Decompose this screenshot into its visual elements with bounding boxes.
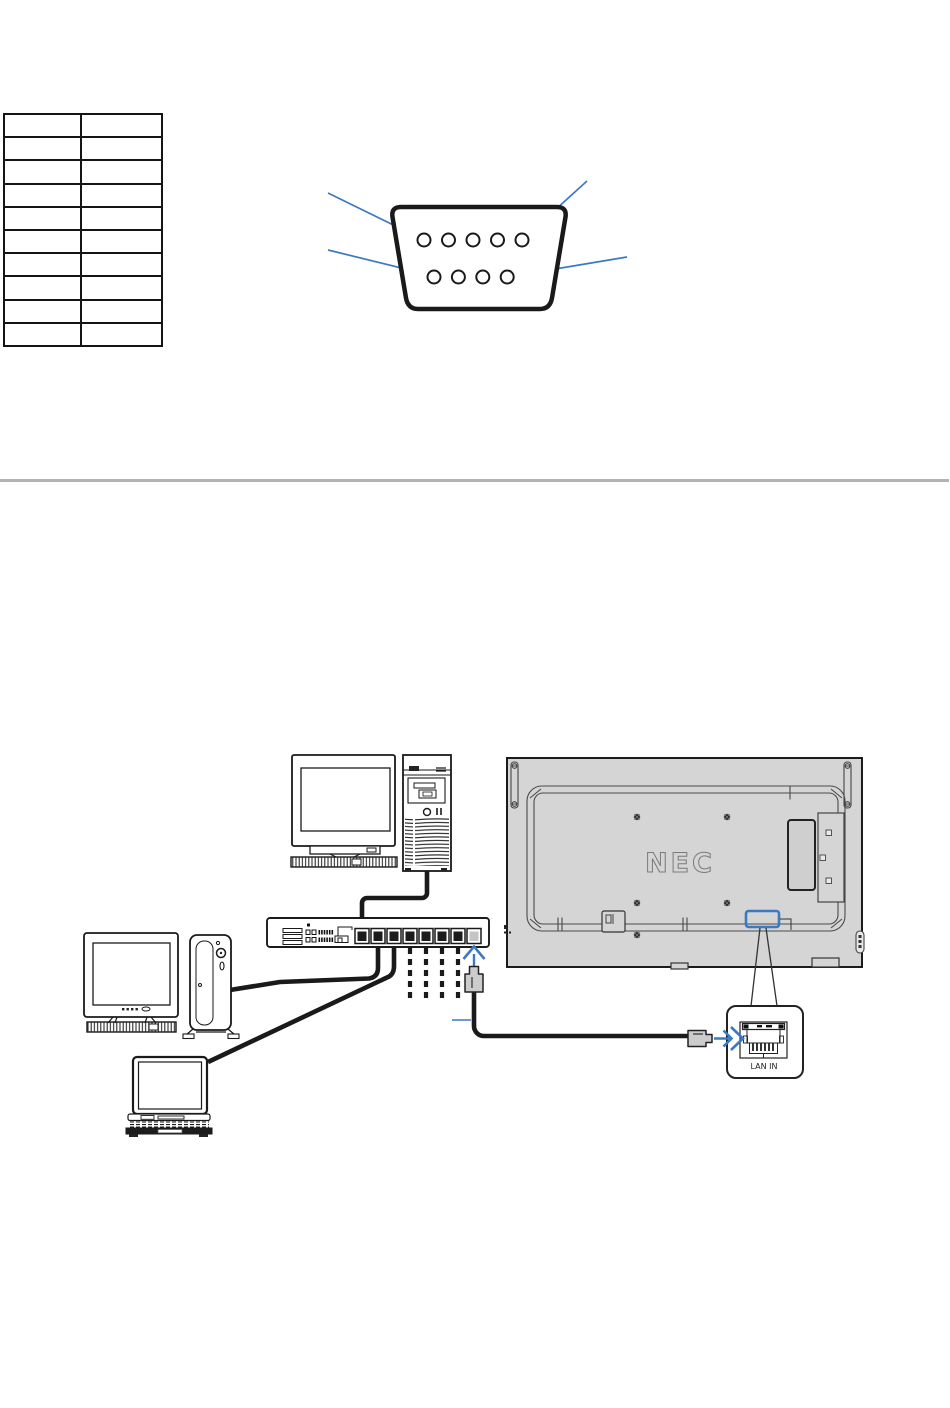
led	[306, 930, 310, 935]
crt-screen	[93, 943, 170, 1005]
laptop-hinge-left	[141, 1116, 154, 1120]
monitor-power	[142, 1007, 150, 1011]
tower-badge	[409, 766, 419, 771]
led-dot	[321, 938, 323, 943]
hub-port-inner	[390, 932, 399, 942]
dsub-pin-top	[516, 234, 529, 247]
bottom-notch	[671, 963, 688, 969]
led	[312, 938, 316, 943]
network-hub	[267, 918, 489, 947]
dsub-pin-top	[491, 234, 504, 247]
dsub-pin-top	[418, 234, 431, 247]
led-dot	[324, 938, 326, 943]
hub-port-inner	[406, 932, 415, 942]
dsub-pin-bottom	[452, 271, 465, 284]
keyboard-key	[352, 859, 361, 865]
cable-clamp	[602, 911, 625, 932]
desktop-computer-1	[291, 755, 451, 871]
cable-hub-to-laptop	[208, 943, 394, 1062]
manual-page: NEC	[0, 0, 950, 1408]
rj45-plug-vertical	[465, 967, 483, 993]
keyboard-key	[149, 1024, 158, 1030]
hub-port-inner	[470, 932, 479, 942]
dsub-pin-top	[442, 234, 455, 247]
tower-foot-right	[228, 1034, 239, 1039]
laptop-hinge-right	[158, 1116, 184, 1119]
laptop-touchpad	[158, 1130, 182, 1133]
option-slot-cover	[788, 820, 815, 890]
led-dot	[319, 930, 321, 935]
led-dot	[326, 930, 328, 935]
dsub-9pin-connector-diagram	[328, 181, 627, 309]
keyboard	[87, 1022, 176, 1032]
hub-port-inner	[358, 932, 367, 942]
dsub-pin-bottom	[501, 271, 514, 284]
tower-screw	[199, 984, 202, 987]
led-dot	[332, 930, 334, 935]
hub-led-dot	[307, 924, 310, 927]
tower-vents	[405, 818, 449, 866]
tower-front-panel	[196, 941, 213, 1025]
led-dot	[329, 938, 331, 943]
hub-dashed-drop-cables	[410, 948, 458, 1000]
led-dot	[321, 930, 323, 935]
hub-port-inner	[374, 932, 383, 942]
stand-switch	[367, 848, 376, 852]
laptop-foot-left	[129, 1134, 138, 1137]
laptop-computer	[126, 1057, 212, 1137]
led-dot	[332, 938, 334, 943]
led	[312, 930, 316, 935]
rj45-plug-horizontal	[688, 1031, 712, 1047]
lan-in-label: LAN IN	[751, 1062, 778, 1071]
crt-screen	[301, 768, 390, 831]
led-dot	[329, 930, 331, 935]
hub-port-inner	[438, 932, 447, 942]
network-connection-diagram: NEC	[84, 755, 864, 1137]
nec-display-rear-panel: NEC	[504, 758, 864, 969]
dsub-pin-top	[467, 234, 480, 247]
led-dot	[319, 938, 321, 943]
tower-foot-right	[441, 868, 447, 871]
dsub-shell	[392, 207, 565, 309]
led-dot	[324, 930, 326, 935]
nec-logo: NEC	[645, 848, 715, 879]
bottom-right-tab	[812, 958, 839, 967]
laptop-screen	[139, 1062, 202, 1109]
led-dot	[326, 938, 328, 943]
led	[306, 938, 310, 943]
page-diagrams: NEC	[0, 0, 950, 1408]
tower-button	[220, 962, 224, 970]
tower-foot-left	[405, 868, 411, 871]
lan-cable	[474, 992, 688, 1036]
side-control-strip	[856, 931, 864, 953]
laptop-key-rows	[130, 1122, 209, 1127]
desktop-computer-2	[84, 933, 239, 1039]
handle-left	[511, 762, 518, 808]
cable-hub-to-desktop	[230, 943, 378, 990]
tower-foot-left	[183, 1034, 194, 1039]
tower-led	[216, 941, 219, 944]
power-dot	[220, 952, 222, 954]
hub-port-inner	[454, 932, 463, 942]
hub-port-inner	[422, 932, 431, 942]
dsub-pin-bottom	[428, 271, 441, 284]
power-button	[424, 809, 431, 816]
dsub-pin-bottom	[476, 271, 489, 284]
rj45-jack	[740, 1022, 787, 1058]
rj45-plug-to-hub	[464, 947, 485, 993]
hub-led-bars	[283, 929, 302, 945]
floppy-slot	[414, 783, 435, 788]
keyboard	[291, 857, 397, 867]
laptop-foot-right	[199, 1134, 208, 1137]
cd-button	[423, 792, 432, 796]
